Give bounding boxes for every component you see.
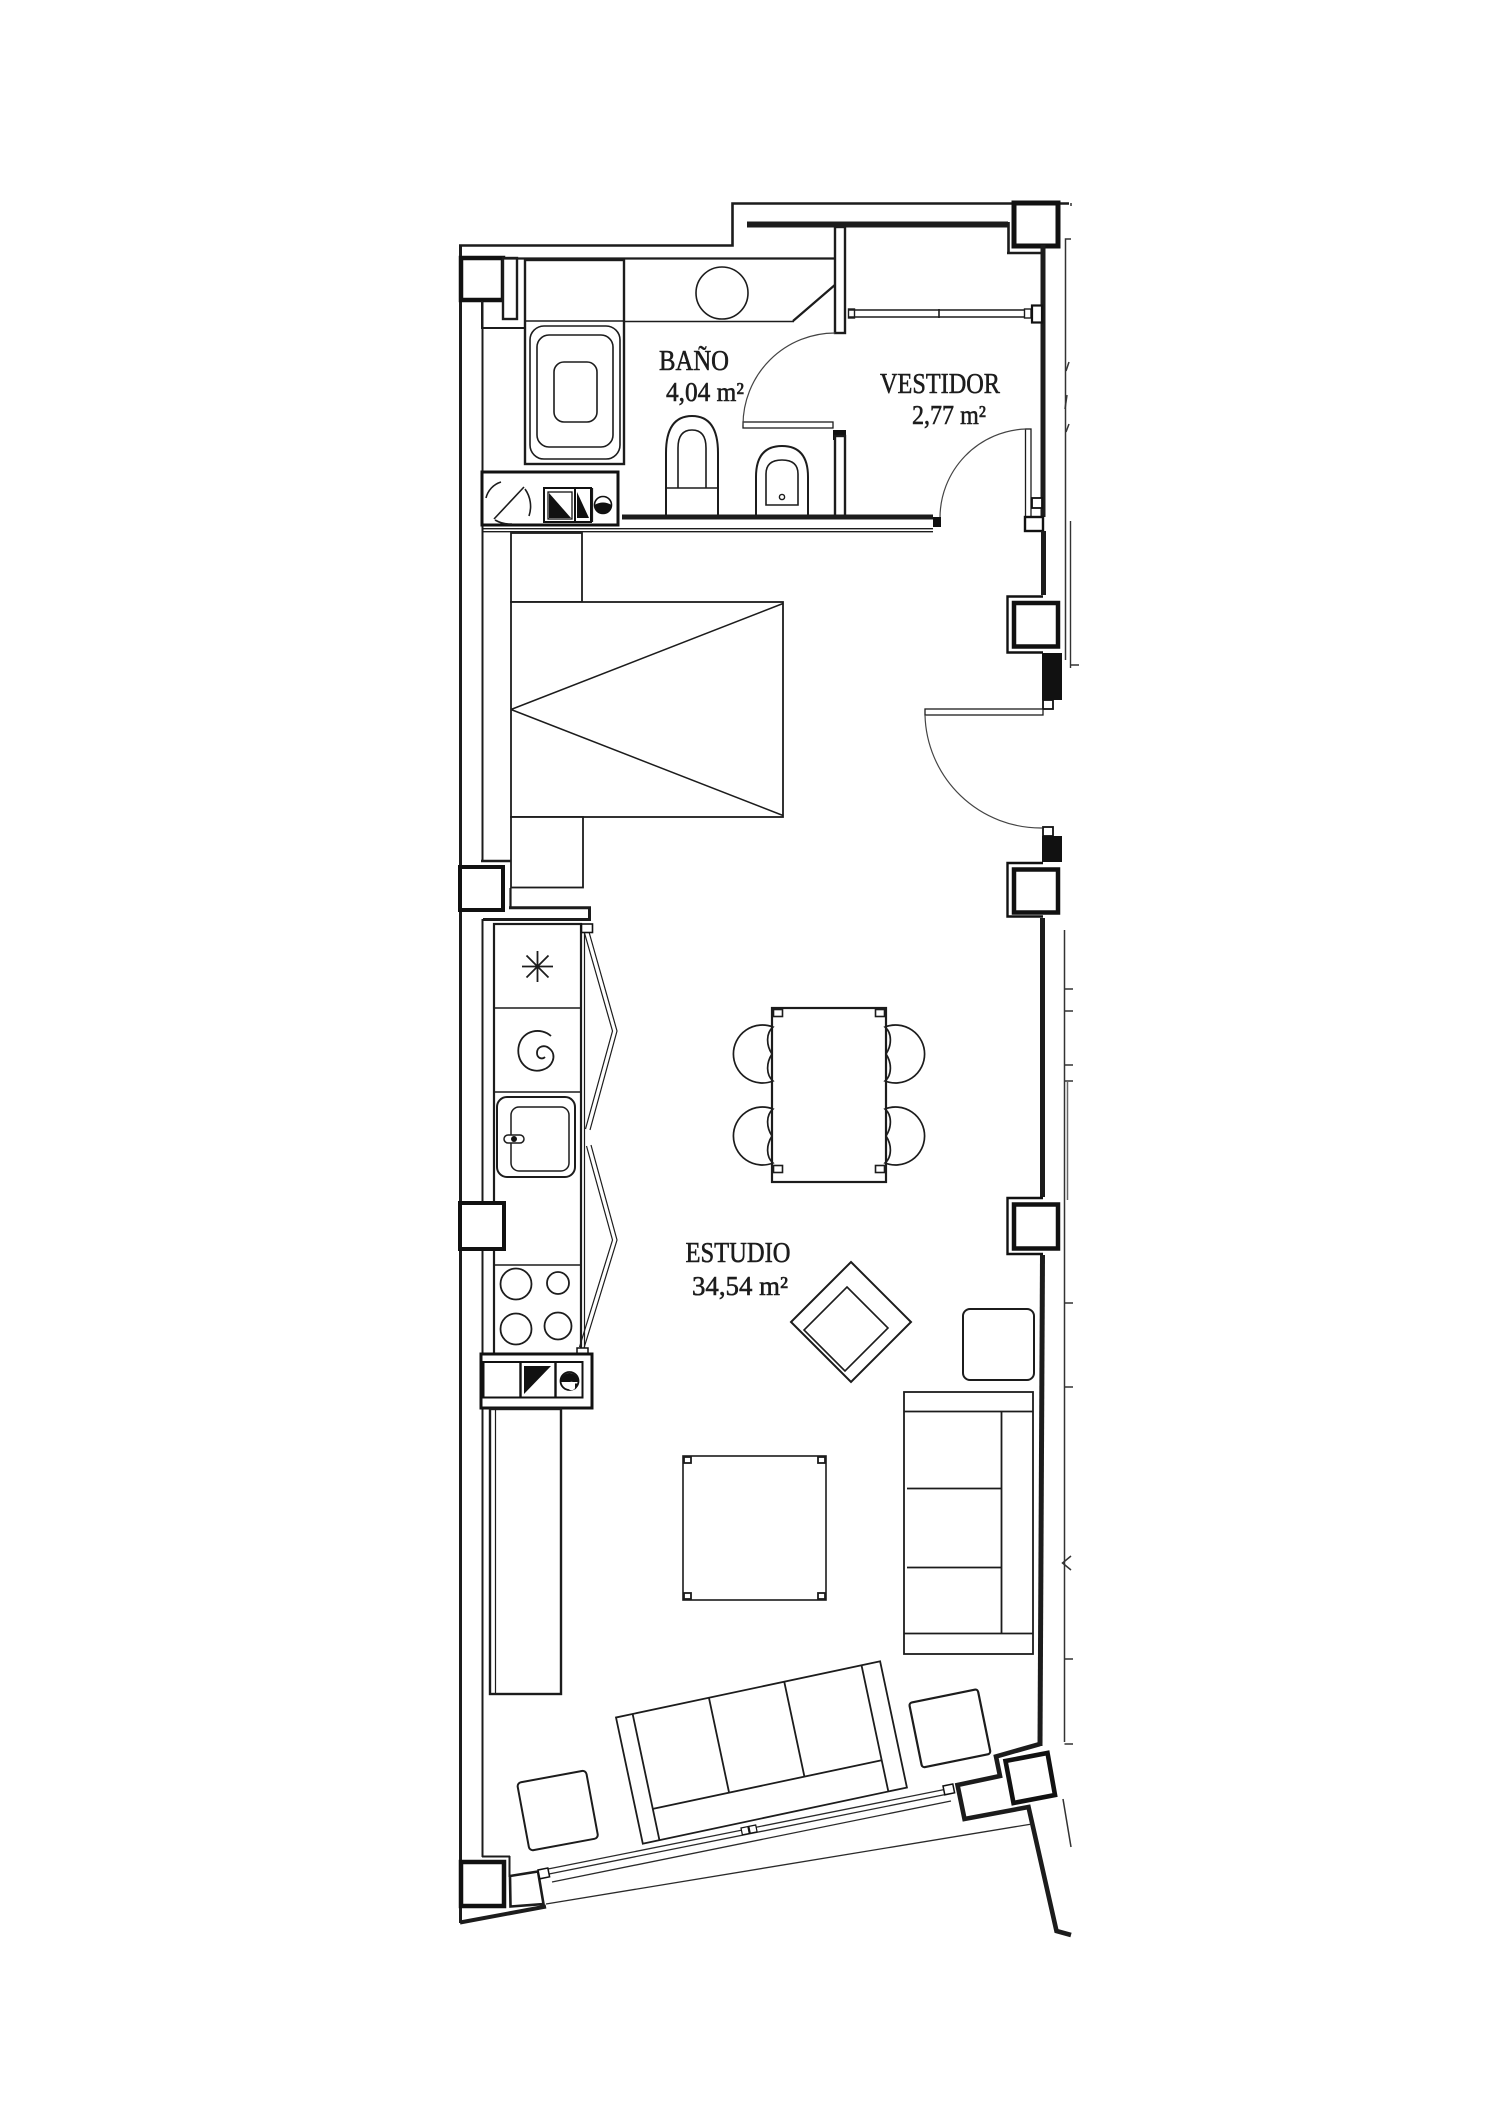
svg-text:2,77 m²: 2,77 m² <box>912 400 986 430</box>
svg-text:VESTIDOR: VESTIDOR <box>880 368 1001 400</box>
svg-text:BAÑO: BAÑO <box>659 346 729 377</box>
svg-text:ESTUDIO: ESTUDIO <box>686 1237 791 1269</box>
svg-text:34,54 m²: 34,54 m² <box>692 1271 788 1301</box>
svg-text:4,04 m²: 4,04 m² <box>666 377 744 407</box>
